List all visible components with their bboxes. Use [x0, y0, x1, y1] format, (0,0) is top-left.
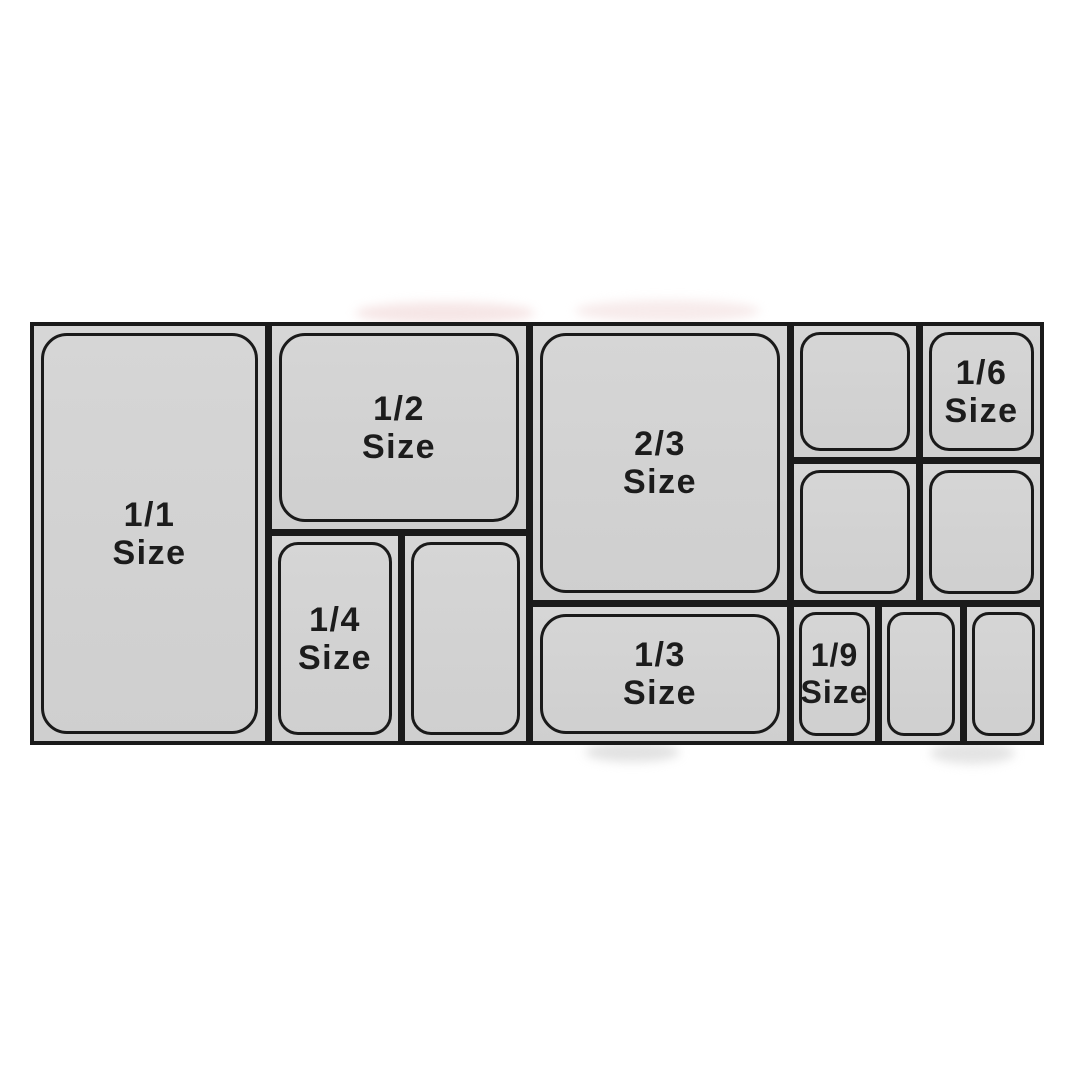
pan-1-6: 1/6 Size	[923, 326, 1040, 457]
pan-1-1-fraction: 1/1	[124, 496, 176, 534]
pan-2-3-label: 2/3 Size	[533, 326, 787, 600]
pan-1-2: 1/2 Size	[272, 326, 526, 529]
pan-1-1: 1/1 Size	[34, 326, 265, 741]
pan-1-1-word: Size	[112, 534, 186, 572]
pan-2-3-word: Size	[623, 463, 697, 501]
pan-1-6-label: 1/6 Size	[923, 326, 1040, 457]
pan-1-9-middle-unlabeled	[882, 607, 960, 741]
pan-1-3: 1/3 Size	[533, 607, 787, 741]
pan-1-6-fraction: 1/6	[956, 354, 1008, 392]
pan-1-3-fraction: 1/3	[634, 636, 686, 674]
pan-1-2-word: Size	[362, 428, 436, 466]
photo-crop-artifact	[585, 742, 680, 762]
page-background: 1/1 Size 1/2 Size 1/4 Size 2/3 Size	[0, 0, 1080, 1080]
pan-1-9-word: Size	[800, 674, 868, 711]
photo-crop-artifact	[930, 742, 1015, 764]
pan-1-4-word: Size	[298, 639, 372, 677]
pan-2-3: 2/3 Size	[533, 326, 787, 600]
pan-1-6-word: Size	[944, 392, 1018, 430]
pan-1-4: 1/4 Size	[272, 536, 398, 741]
pan-1-2-label: 1/2 Size	[272, 326, 526, 529]
pan-1-3-word: Size	[623, 674, 697, 712]
pan-1-9: 1/9 Size	[794, 607, 875, 741]
pan-2-3-fraction: 2/3	[634, 425, 686, 463]
pan-1-6-bottom-right-unlabeled	[923, 464, 1040, 600]
pan-1-6-top-left-unlabeled	[794, 326, 916, 457]
pan-1-9-label: 1/9 Size	[794, 607, 875, 741]
pan-1-1-label: 1/1 Size	[34, 326, 265, 741]
pan-1-6-bottom-left-unlabeled	[794, 464, 916, 600]
pan-1-9-right-unlabeled	[967, 607, 1040, 741]
gastronorm-pan-size-chart: 1/1 Size 1/2 Size 1/4 Size 2/3 Size	[30, 322, 1044, 745]
photo-crop-artifact	[355, 302, 535, 324]
pan-1-4-fraction: 1/4	[309, 601, 361, 639]
pan-1-4-label: 1/4 Size	[272, 536, 398, 741]
pan-1-9-fraction: 1/9	[811, 637, 858, 674]
pan-1-4-unlabeled	[405, 536, 526, 741]
photo-crop-artifact	[575, 300, 760, 322]
pan-1-2-fraction: 1/2	[373, 390, 425, 428]
pan-1-3-label: 1/3 Size	[533, 607, 787, 741]
